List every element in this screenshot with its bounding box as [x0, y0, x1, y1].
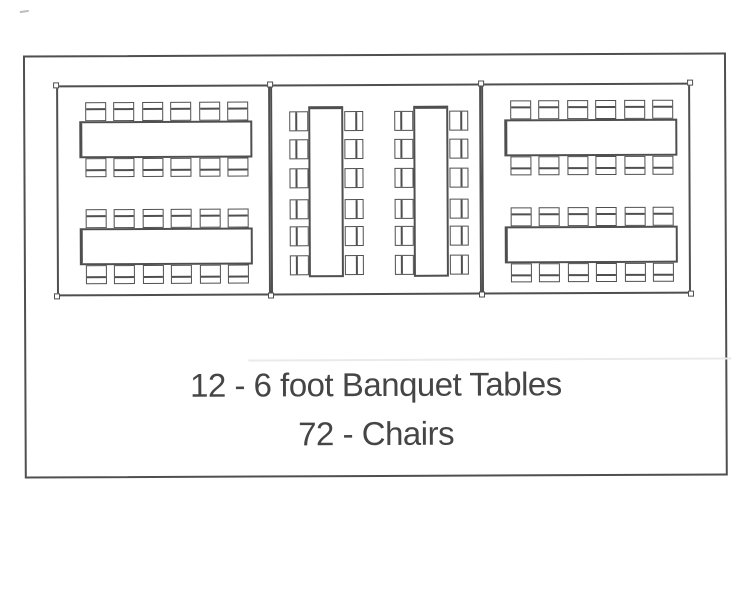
chair: [595, 156, 616, 175]
chair: [511, 263, 532, 282]
chair: [171, 265, 192, 284]
chair: [344, 168, 363, 188]
chair: [113, 102, 134, 121]
chair: [290, 226, 309, 246]
corner-marker: [479, 292, 485, 298]
chair: [596, 263, 617, 282]
chair: [449, 168, 468, 188]
chair: [199, 102, 220, 121]
chair: [653, 263, 674, 282]
scanned-page: 12 - 6 foot Banquet Tables 72 - Chairs: [0, 0, 750, 590]
table-seam: [310, 107, 341, 109]
chair: [625, 263, 646, 282]
chair: [450, 226, 469, 246]
chair: [394, 168, 413, 188]
banquet-table-pair: [308, 106, 344, 277]
chair: [199, 158, 220, 177]
chair: [539, 263, 560, 282]
banquet-table-pair: [413, 106, 449, 277]
chair: [568, 207, 589, 226]
tent-section-center: [270, 84, 482, 296]
chair: [395, 199, 414, 219]
chair: [114, 209, 135, 228]
chair: [200, 265, 221, 284]
banquet-table-pair: [504, 119, 677, 157]
caption-chair-count: 72 - Chairs: [25, 407, 728, 459]
chair: [289, 111, 308, 131]
chair: [200, 209, 221, 228]
chair: [511, 207, 532, 226]
chair: [345, 226, 364, 246]
caption-table-count: 12 - 6 foot Banquet Tables: [24, 358, 727, 410]
chair: [85, 158, 106, 177]
chair: [86, 209, 107, 228]
banquet-table-pair: [80, 228, 253, 266]
chair: [653, 207, 674, 226]
chair: [227, 102, 248, 121]
chair: [596, 207, 617, 226]
chair: [228, 209, 249, 228]
chair: [652, 100, 673, 119]
tent-section-right: [481, 83, 691, 295]
chair: [450, 199, 469, 219]
corner-marker: [53, 82, 59, 88]
chair: [345, 255, 364, 275]
chair: [450, 255, 469, 275]
chair: [624, 100, 645, 119]
chair: [290, 199, 309, 219]
chair: [625, 207, 646, 226]
corner-marker: [268, 292, 274, 298]
corner-marker: [478, 81, 484, 87]
chair: [539, 207, 560, 226]
table-seam: [506, 228, 508, 261]
chair: [394, 139, 413, 159]
chair: [510, 100, 531, 119]
floor-plan: [0, 0, 750, 590]
chair: [595, 100, 616, 119]
chair: [345, 199, 364, 219]
chair: [624, 156, 645, 175]
chair: [395, 226, 414, 246]
corner-marker: [688, 291, 694, 297]
table-seam: [505, 121, 507, 154]
table-seam: [81, 230, 83, 263]
chair: [290, 255, 309, 275]
chair: [86, 265, 107, 284]
chair: [228, 265, 249, 284]
chair: [114, 265, 135, 284]
chair: [170, 158, 191, 177]
banquet-table-pair: [79, 121, 252, 159]
chair: [652, 156, 673, 175]
chair: [395, 255, 414, 275]
chair: [344, 139, 363, 159]
banquet-table-pair: [505, 226, 678, 264]
chair: [289, 139, 308, 159]
chair: [85, 102, 106, 121]
caption: 12 - 6 foot Banquet Tables 72 - Chairs: [24, 358, 727, 459]
chair: [171, 209, 192, 228]
tent-section-left: [56, 84, 271, 296]
chair: [142, 102, 163, 121]
chair: [143, 209, 164, 228]
chair: [394, 111, 413, 131]
chair: [567, 100, 588, 119]
chair: [449, 111, 468, 131]
chair: [538, 100, 559, 119]
chair: [567, 156, 588, 175]
corner-marker: [54, 293, 60, 299]
chair: [449, 139, 468, 159]
chair: [289, 168, 308, 188]
chair: [143, 265, 164, 284]
chair: [113, 158, 134, 177]
corner-marker: [687, 80, 693, 86]
chair: [344, 111, 363, 131]
chair: [538, 156, 559, 175]
chair: [227, 158, 248, 177]
chair: [568, 263, 589, 282]
table-seam: [80, 123, 82, 156]
chair: [142, 158, 163, 177]
chair: [170, 102, 191, 121]
chair: [510, 156, 531, 175]
table-seam: [415, 107, 446, 109]
corner-marker: [267, 81, 273, 87]
